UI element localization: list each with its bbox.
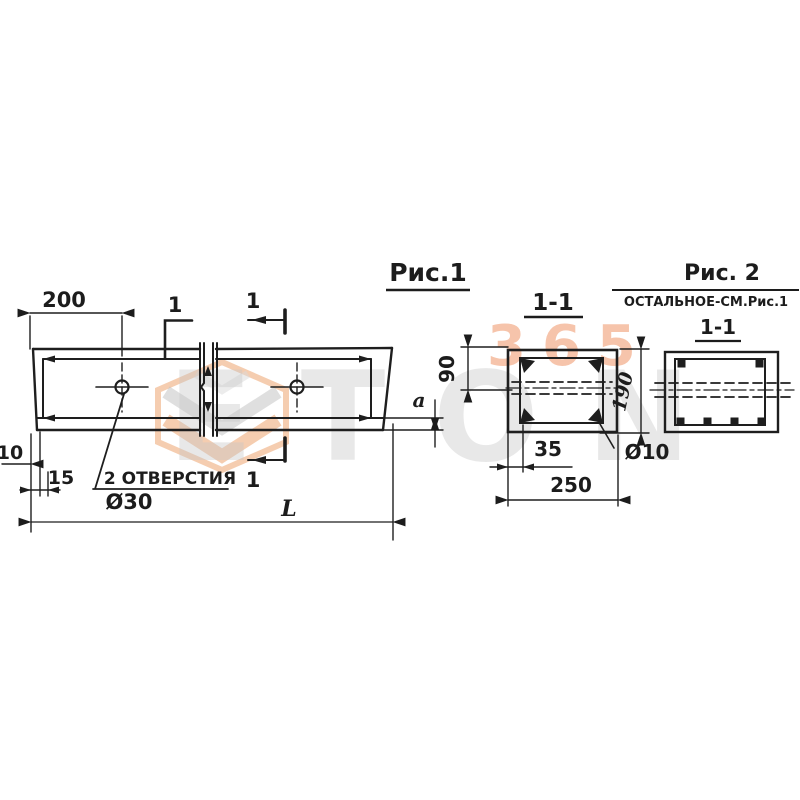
dim-200-label: 200 bbox=[42, 288, 86, 312]
length-L-label: L bbox=[280, 496, 296, 522]
section-mark-top-right-label: 1 bbox=[246, 289, 261, 313]
section-mark-bottom-label: 1 bbox=[246, 468, 261, 492]
figure2-note: ОСТАЛЬНОЕ-СМ.Рис.1 bbox=[624, 295, 788, 310]
section-mark-top-left-label: 1 bbox=[168, 293, 183, 317]
section2-title: 1-1 bbox=[700, 315, 736, 339]
section1-title: 1-1 bbox=[532, 290, 574, 316]
rebar-diameter-label: Ø10 bbox=[625, 440, 670, 464]
holes-diameter-label: Ø30 bbox=[105, 490, 152, 514]
dim-15-label: 15 bbox=[48, 467, 74, 489]
dim-90-label: 90 bbox=[435, 355, 459, 383]
figure1-title: Рис.1 bbox=[389, 258, 467, 287]
holes-note-label: 2 ОТВЕРСТИЯ bbox=[104, 469, 236, 489]
section-mark-top-right bbox=[248, 310, 285, 333]
blueprint-page: ETON 365 bbox=[0, 0, 800, 800]
gap-a-label: a bbox=[413, 388, 426, 412]
dim-35-label: 35 bbox=[534, 437, 562, 461]
watermark-number-text: 365 bbox=[487, 314, 652, 379]
left-extension-lines bbox=[31, 432, 48, 532]
dim-10-label: 10 bbox=[0, 442, 23, 464]
dim-250-label: 250 bbox=[550, 473, 592, 497]
figure2-title: Рис. 2 bbox=[684, 261, 760, 286]
hole-left bbox=[96, 363, 148, 412]
technical-drawing: ETON 365 bbox=[0, 0, 800, 800]
